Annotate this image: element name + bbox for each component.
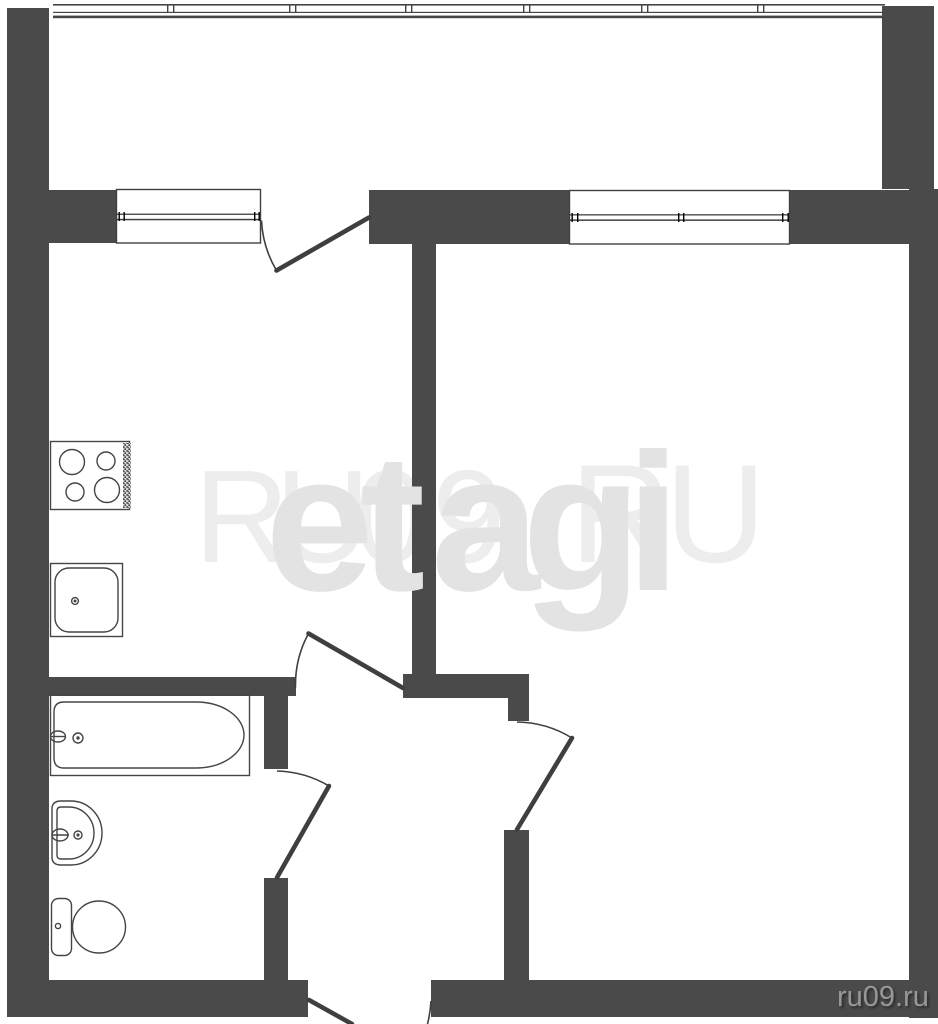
svg-text:etagi: etagi bbox=[265, 413, 680, 632]
svg-text:ru09.ru: ru09.ru bbox=[837, 981, 929, 1013]
